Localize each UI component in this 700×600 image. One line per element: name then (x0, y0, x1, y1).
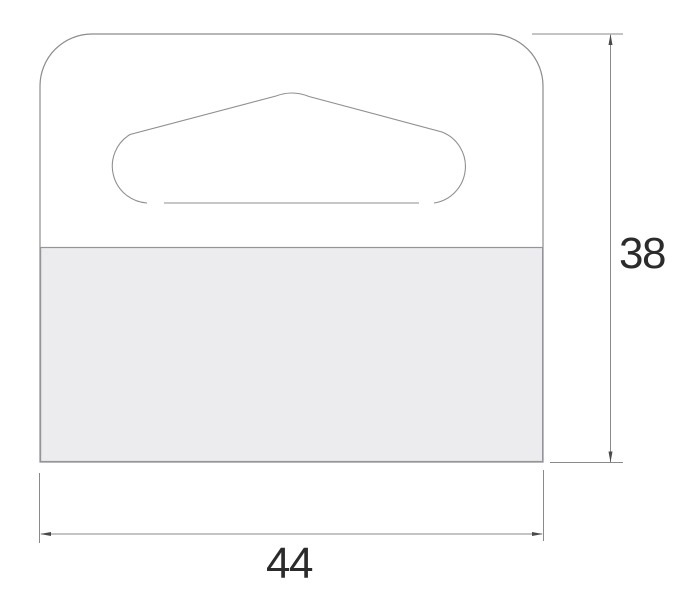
dimension-arrow-right (532, 532, 543, 536)
height-dimension-label: 38 (619, 229, 665, 278)
dimension-arrow-left (40, 532, 51, 536)
height-dimension: 38 (532, 34, 665, 463)
dimension-arrow-down (609, 452, 613, 463)
hang-tab-drawing: 38 44 (0, 0, 700, 600)
width-dimension: 44 (40, 470, 544, 588)
dimension-arrow-up (609, 34, 613, 45)
technical-drawing-canvas: 38 44 (0, 0, 700, 600)
width-dimension-label: 44 (266, 539, 313, 588)
adhesive-area (41, 248, 543, 462)
